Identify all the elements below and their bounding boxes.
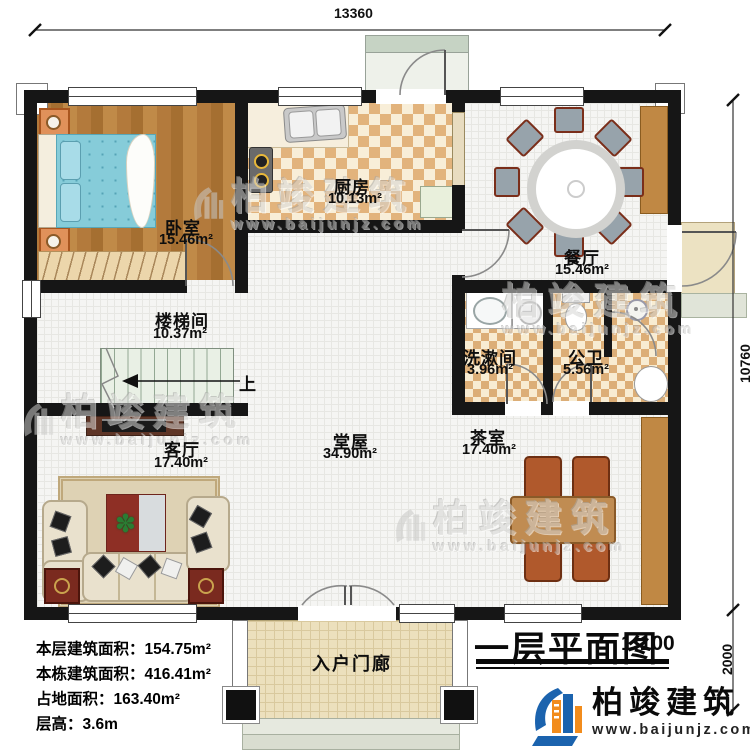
room-area-dining: 15.46m² [555,262,609,278]
brand-logo[interactable]: 柏竣建筑 www.baijunjz.com [530,686,750,748]
dim-right-upper: 10760 [737,344,750,383]
info-floor-area: 本层建筑面积：154.75m² [36,637,211,662]
dim-right-lower: 2000 [719,644,735,675]
room-area-stairwell: 10.37m² [153,326,207,342]
dimension-lines [35,30,733,710]
info-block: 本层建筑面积：154.75m² 本栋建筑面积：416.41m² 占地面积：163… [36,637,211,737]
room-label-entry-porch: 入户门廊 [312,650,392,676]
stair-up-label: 上 [239,370,257,395]
room-area-living: 17.40m² [154,455,208,471]
stair-arrow [102,348,240,408]
room-area-bedroom: 15.46m² [159,232,213,248]
title-underline-thick [476,659,669,664]
dimension-ticks [29,24,739,716]
room-area-bathroom: 5.56m² [563,362,609,378]
room-area-hall: 34.90m² [323,446,377,462]
room-area-tearoom: 17.40m² [462,442,516,458]
plan-scale: 1:100 [621,632,675,656]
dim-top: 13360 [334,5,373,21]
room-area-kitchen: 10.13m² [328,191,382,207]
room-area-washroom: 3.96m² [467,362,513,378]
floor-plan: ✽ [0,0,750,756]
info-total-area: 本栋建筑面积：416.41m² [36,662,211,687]
brand-url[interactable]: www.baijunjz.com [592,722,750,738]
info-footprint: 占地面积：163.40m² [36,687,211,712]
brand-logo-icon [530,686,584,748]
brand-name: 柏竣建筑 [592,686,750,720]
info-height: 层高：3.6m [36,712,211,737]
title-underline-thin [476,667,669,669]
